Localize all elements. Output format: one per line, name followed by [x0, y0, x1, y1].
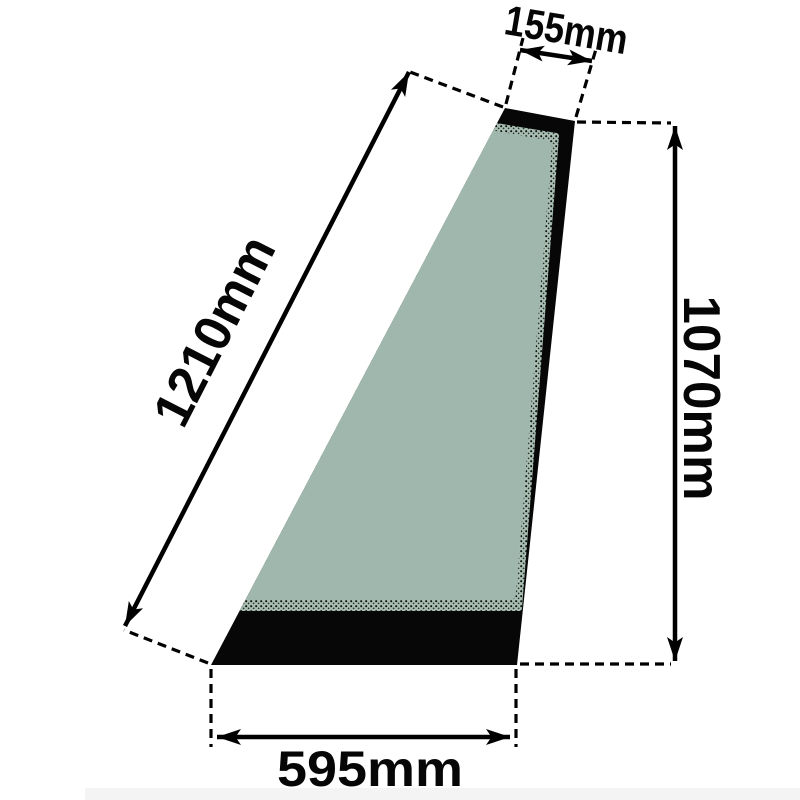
dimension-label-right-height: 1070mm — [672, 296, 730, 501]
dimension-label-bottom-width: 595mm — [277, 741, 463, 797]
quarter-glass-diagram: 155mm 1210mm 1070mm 595mm — [0, 0, 800, 800]
